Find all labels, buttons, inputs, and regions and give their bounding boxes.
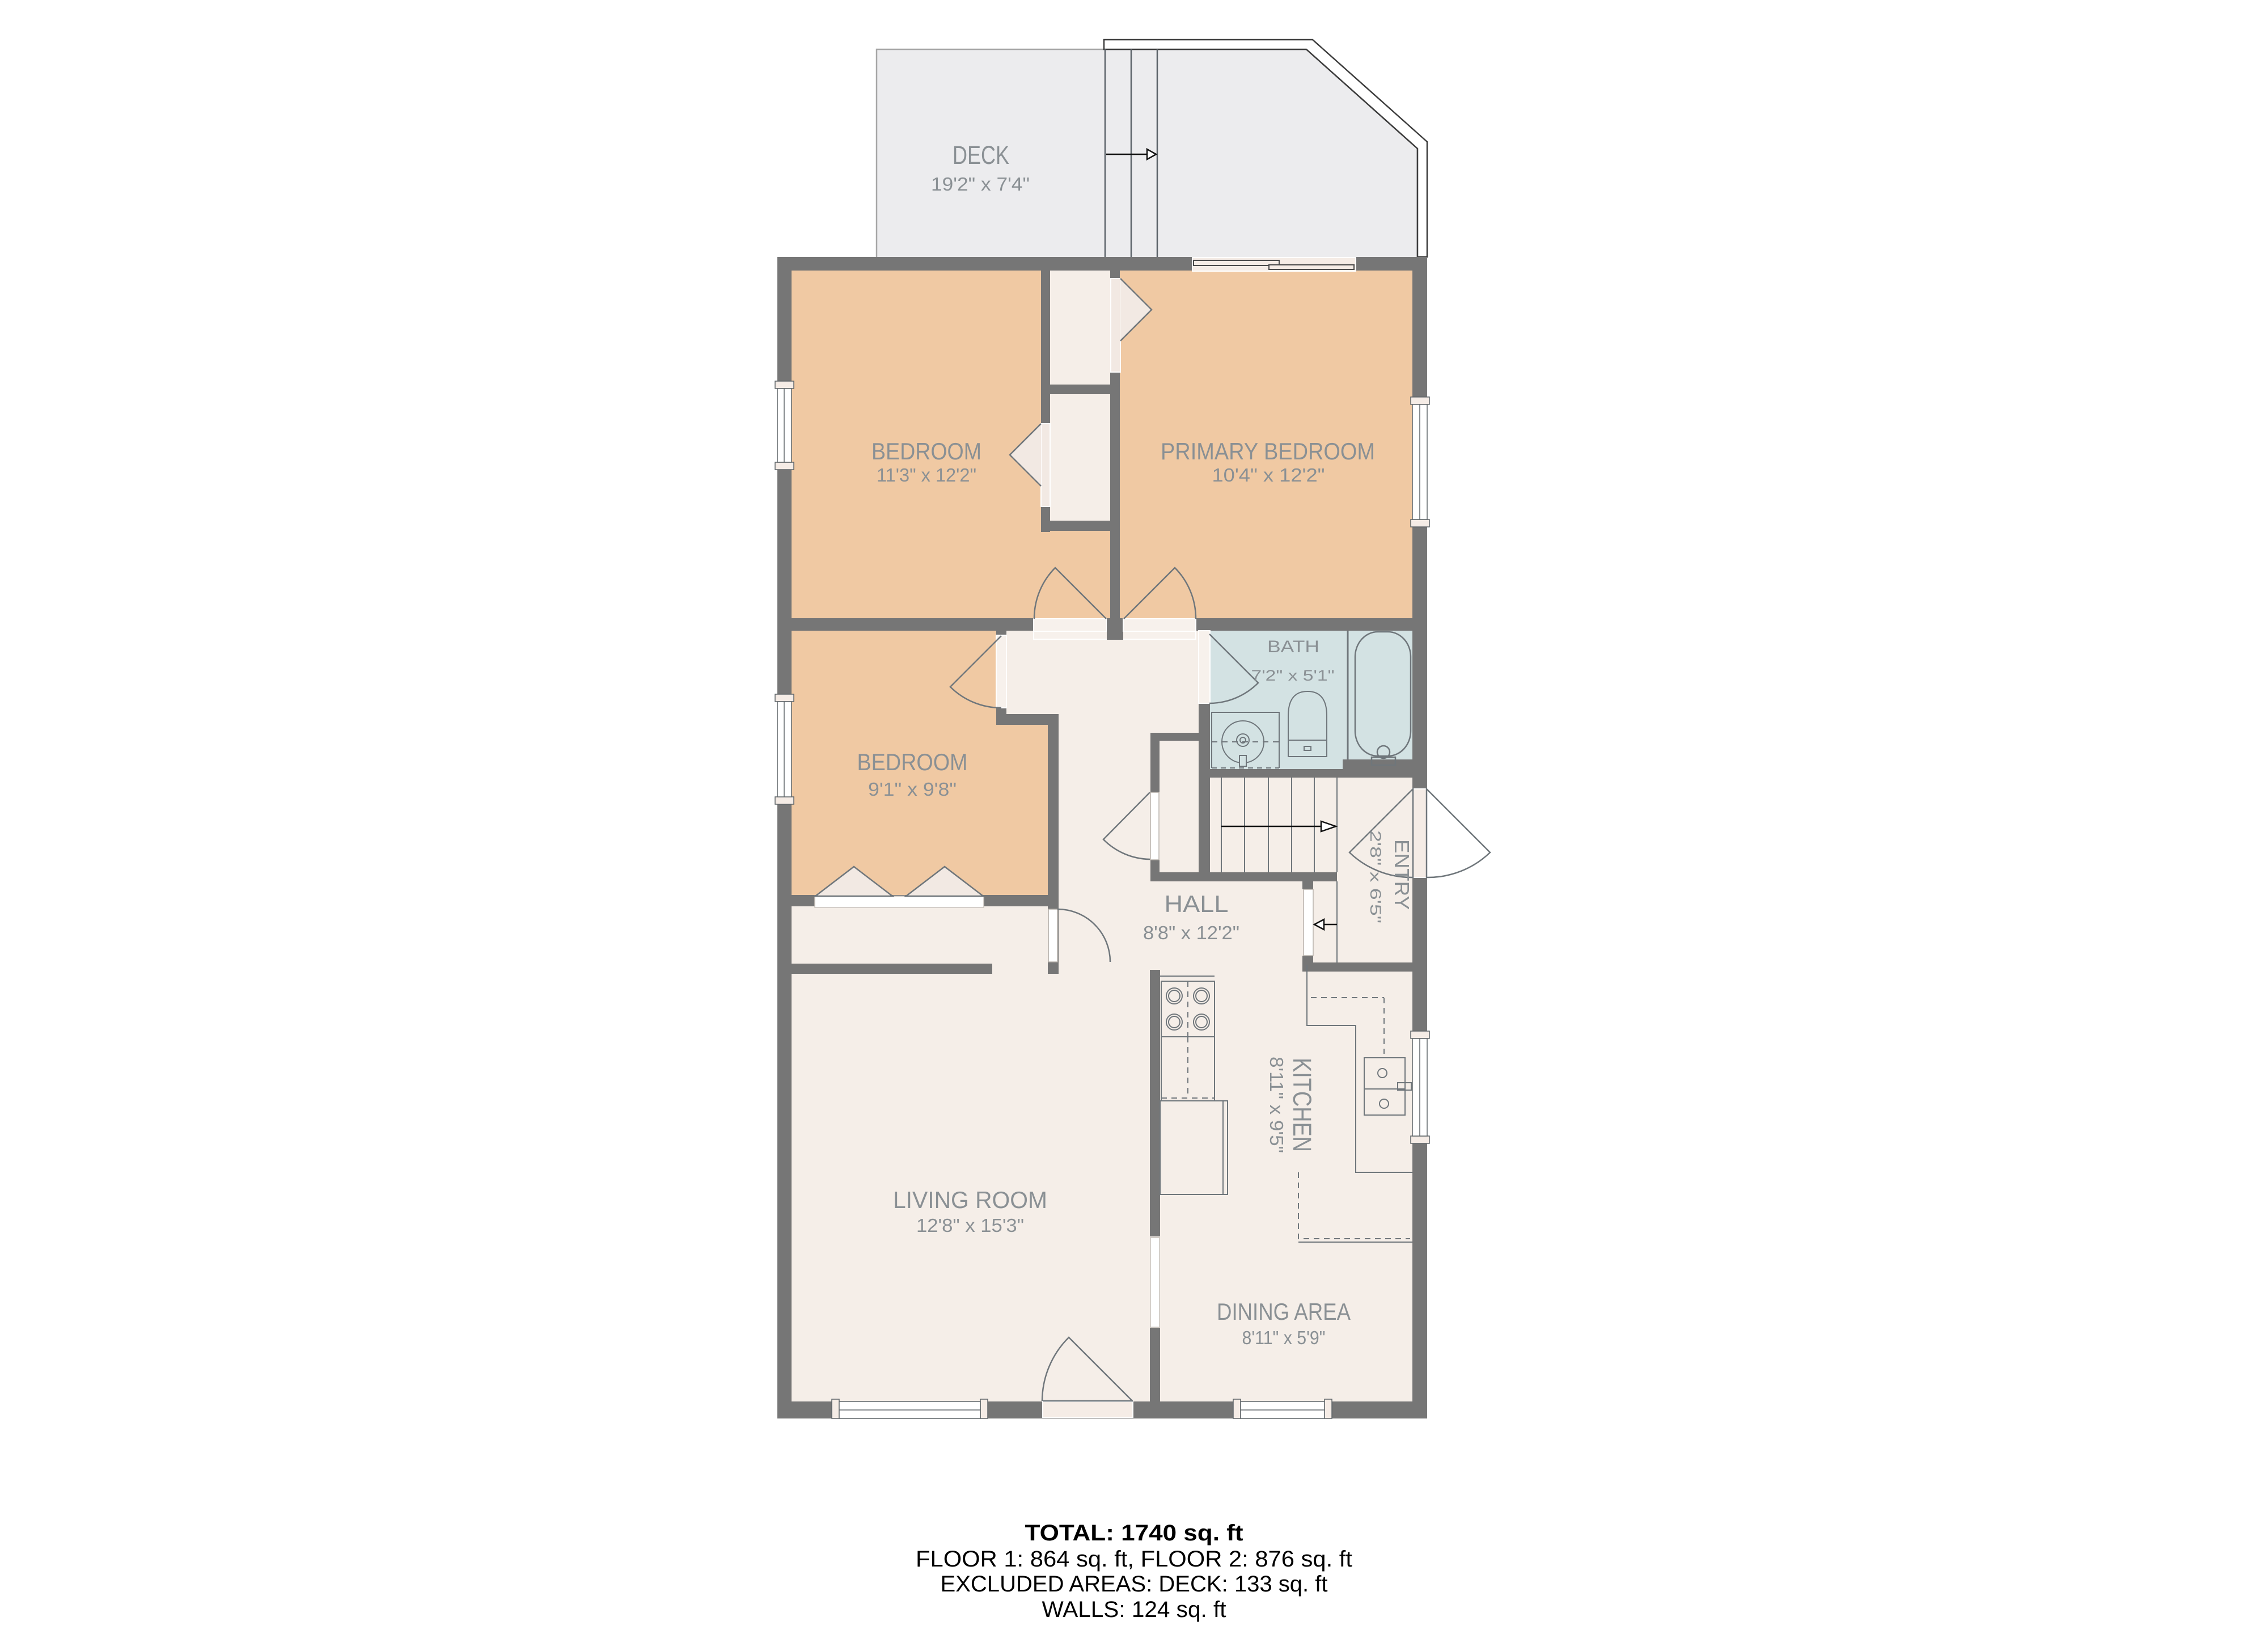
- svg-text:LIVING ROOM: LIVING ROOM: [893, 1187, 1047, 1213]
- svg-text:9'1" x 9'8": 9'1" x 9'8": [868, 779, 957, 800]
- svg-text:WALLS: 124 sq. ft: WALLS: 124 sq. ft: [1042, 1597, 1226, 1622]
- svg-text:ENTRY: ENTRY: [1390, 839, 1414, 910]
- svg-text:TOTAL: 1740 sq. ft: TOTAL: 1740 sq. ft: [1025, 1521, 1243, 1546]
- svg-text:12'8" x 15'3": 12'8" x 15'3": [916, 1215, 1024, 1236]
- svg-text:FLOOR 1: 864 sq. ft, FLOOR 2:: FLOOR 1: 864 sq. ft, FLOOR 2: 876 sq. ft: [916, 1547, 1352, 1572]
- svg-text:BEDROOM: BEDROOM: [871, 438, 981, 465]
- svg-text:2'8" x 6'5": 2'8" x 6'5": [1367, 830, 1384, 923]
- svg-text:KITCHEN: KITCHEN: [1288, 1058, 1317, 1152]
- svg-text:8'11" x 5'9": 8'11" x 5'9": [1242, 1327, 1326, 1348]
- svg-text:HALL: HALL: [1165, 890, 1229, 917]
- svg-text:7'2" x 5'1": 7'2" x 5'1": [1251, 667, 1335, 684]
- svg-text:EXCLUDED AREAS: DECK: 133 sq.: EXCLUDED AREAS: DECK: 133 sq. ft: [941, 1572, 1328, 1597]
- svg-text:BEDROOM: BEDROOM: [857, 749, 968, 775]
- svg-text:DINING AREA: DINING AREA: [1217, 1298, 1351, 1325]
- svg-text:11'3" x 12'2": 11'3" x 12'2": [877, 465, 976, 485]
- svg-text:8'8" x 12'2": 8'8" x 12'2": [1143, 922, 1239, 943]
- svg-text:BATH: BATH: [1267, 637, 1319, 656]
- svg-text:19'2" x 7'4": 19'2" x 7'4": [931, 174, 1030, 195]
- svg-text:8'11" x 9'5": 8'11" x 9'5": [1266, 1057, 1287, 1153]
- svg-text:10'4" x 12'2": 10'4" x 12'2": [1212, 465, 1325, 485]
- svg-text:PRIMARY BEDROOM: PRIMARY BEDROOM: [1161, 438, 1375, 465]
- svg-text:DECK: DECK: [953, 141, 1009, 170]
